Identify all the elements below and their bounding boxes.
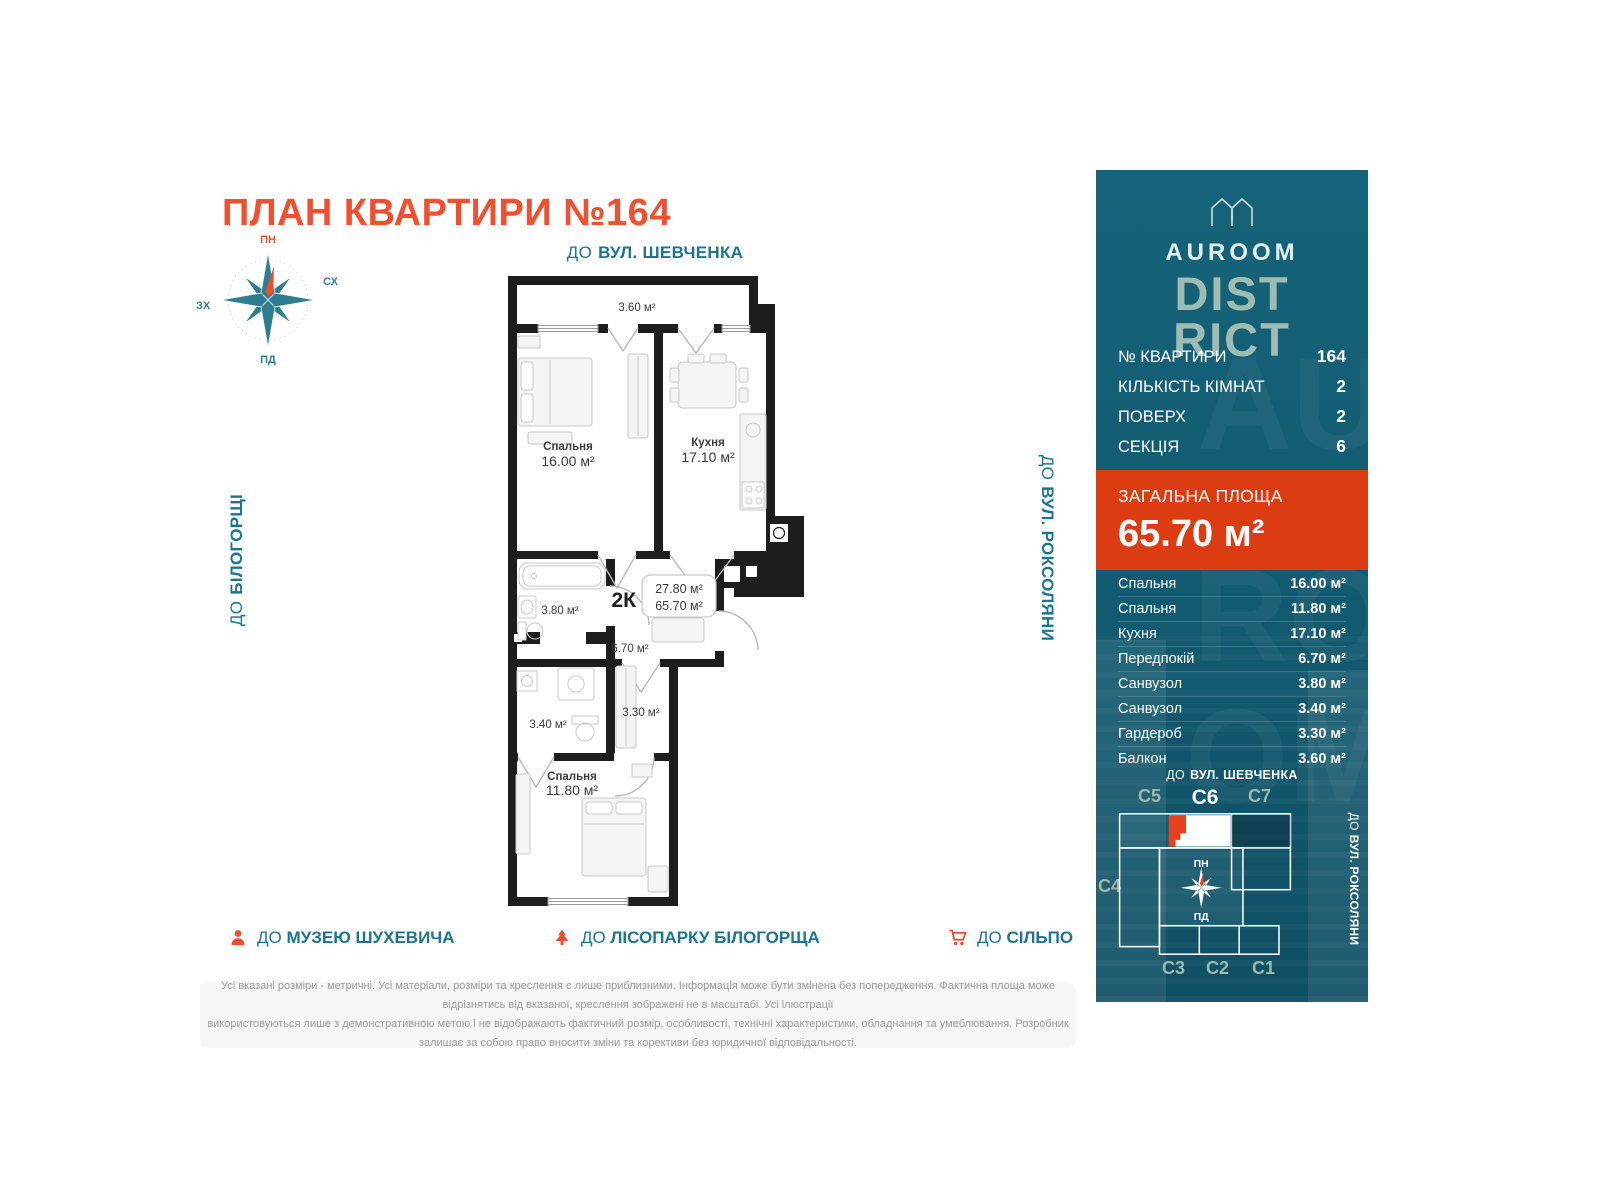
brand-district-line1: DIST (1096, 275, 1368, 313)
section-c6: С6 (1192, 786, 1219, 810)
poi-store: ДО СІЛЬПО (948, 928, 1073, 948)
poi-museum: ДО МУЗЕЮ ШУХЕВИЧА (228, 928, 455, 948)
compass-star-icon (206, 238, 330, 362)
compass-west-label: ЗХ (196, 300, 210, 312)
info-row-section: СЕКЦІЯ6 (1118, 436, 1346, 466)
total-area-block: ЗАГАЛЬНА ПЛОЩА 65.70 м² (1096, 470, 1368, 570)
auroom-house-icon (1204, 194, 1260, 228)
cart-icon (948, 928, 968, 948)
map-street-top: ДОВУЛ. ШЕВЧЕНКА (1096, 768, 1368, 782)
section-c7: С7 (1248, 786, 1271, 807)
compass-north-label: ПН (260, 234, 276, 246)
person-icon (228, 928, 248, 948)
list-item: Санвузол3.40 м² (1118, 696, 1346, 721)
floorplan-poster: { "title": "ПЛАН КВАРТИРИ №164", "compas… (0, 0, 1600, 1200)
apartment-info: № КВАРТИРИ164 КІЛЬКІСТЬ КІМНАТ2 ПОВЕРХ2 … (1118, 346, 1346, 466)
list-item: Спальня16.00 м² (1118, 572, 1346, 596)
wardrobe-area: 3.30 м² (622, 707, 659, 719)
bath1-area: 3.80 м² (541, 605, 578, 617)
badge-living-area: 27.80 м² (655, 582, 703, 596)
compass-rose: ПН СХ ЗХ ПД (206, 238, 330, 362)
compass-east-label: СХ (323, 276, 338, 288)
site-map-section: ДОВУЛ. ШЕВЧЕНКА С5 С6 С7 С4 (1096, 768, 1368, 782)
site-map: ПН ПД (1110, 810, 1300, 958)
map-section-labels-bottom: С3 С2 С1 (1110, 958, 1300, 980)
bedroom1-name: Спальня (543, 441, 593, 453)
section-c5: С5 (1138, 786, 1161, 807)
info-row-apartment-number: № КВАРТИРИ164 (1118, 346, 1346, 376)
room-area-list: Спальня16.00 м² Спальня11.80 м² Кухня17.… (1118, 572, 1346, 771)
info-row-floor: ПОВЕРХ2 (1118, 406, 1346, 436)
section-c3: С3 (1162, 958, 1185, 979)
badge-total-area: 65.70 м² (655, 599, 703, 613)
total-area-value: 65.70 м² (1118, 513, 1346, 556)
list-item: Спальня11.80 м² (1118, 596, 1346, 621)
bedroom2-area: 11.80 м² (546, 782, 599, 798)
map-street-right: ДОВУЛ. РОКСОЛЯНИ (1347, 779, 1361, 979)
map-section-labels-top: С5 С6 С7 (1110, 786, 1300, 808)
bath2-area: 3.40 м² (529, 719, 566, 731)
compass-south-label: ПД (260, 354, 276, 366)
list-item: Гардероб3.30 м² (1118, 721, 1346, 746)
list-item: Кухня17.10 м² (1118, 621, 1346, 646)
apartment-type-badge: 2К 27.80 м² 65.70 м² (612, 575, 717, 617)
sidebar: AU RO OM AUROOM DIST RICT № КВАРТИРИ164 … (1096, 170, 1368, 1002)
street-label-left: ДОБІЛОГОРЩІ (227, 460, 247, 660)
hall-area: 6.70 м² (611, 643, 648, 655)
disclaimer-line2: використовуються лише з демонстративною … (200, 1015, 1076, 1054)
disclaimer: Усі вказані розміри - метричні. Усі мате… (200, 982, 1076, 1048)
kitchen-name: Кухня (691, 437, 725, 449)
info-row-room-count: КІЛЬКІСТЬ КІМНАТ2 (1118, 376, 1346, 406)
section-c2: С2 (1206, 958, 1229, 979)
total-area-label: ЗАГАЛЬНА ПЛОЩА (1118, 486, 1346, 507)
badge-type: 2К (612, 589, 637, 612)
map-compass-north: ПН (1194, 859, 1209, 870)
page-title: ПЛАН КВАРТИРИ №164 (222, 192, 671, 235)
section-c1: С1 (1252, 958, 1275, 979)
list-item: Санвузол3.80 м² (1118, 671, 1346, 696)
tree-icon (552, 928, 572, 948)
bedroom1-area: 16.00 м² (541, 453, 595, 469)
brand-name: AUROOM (1096, 239, 1368, 267)
map-compass-south: ПД (1194, 912, 1209, 923)
street-label-top: ДОВУЛ. ШЕВЧЕНКА (500, 243, 810, 263)
balcony-area-label: 3.60 м² (618, 302, 655, 314)
floor-plan: 3.60 м² Спальня 16.00 м² Кухня 17.10 м² … (502, 266, 812, 916)
list-item: Передпокій6.70 м² (1118, 646, 1346, 671)
brand-logo: AUROOM DIST RICT (1096, 194, 1368, 359)
disclaimer-line1: Усі вказані розміри - метричні. Усі мате… (200, 977, 1076, 1016)
kitchen-area: 17.10 м² (681, 449, 735, 465)
street-label-right: ДОВУЛ. РОКСОЛЯНИ (1037, 448, 1057, 648)
poi-park: ДО ЛІСОПАРКУ БІЛОГОРЩА (552, 928, 820, 948)
